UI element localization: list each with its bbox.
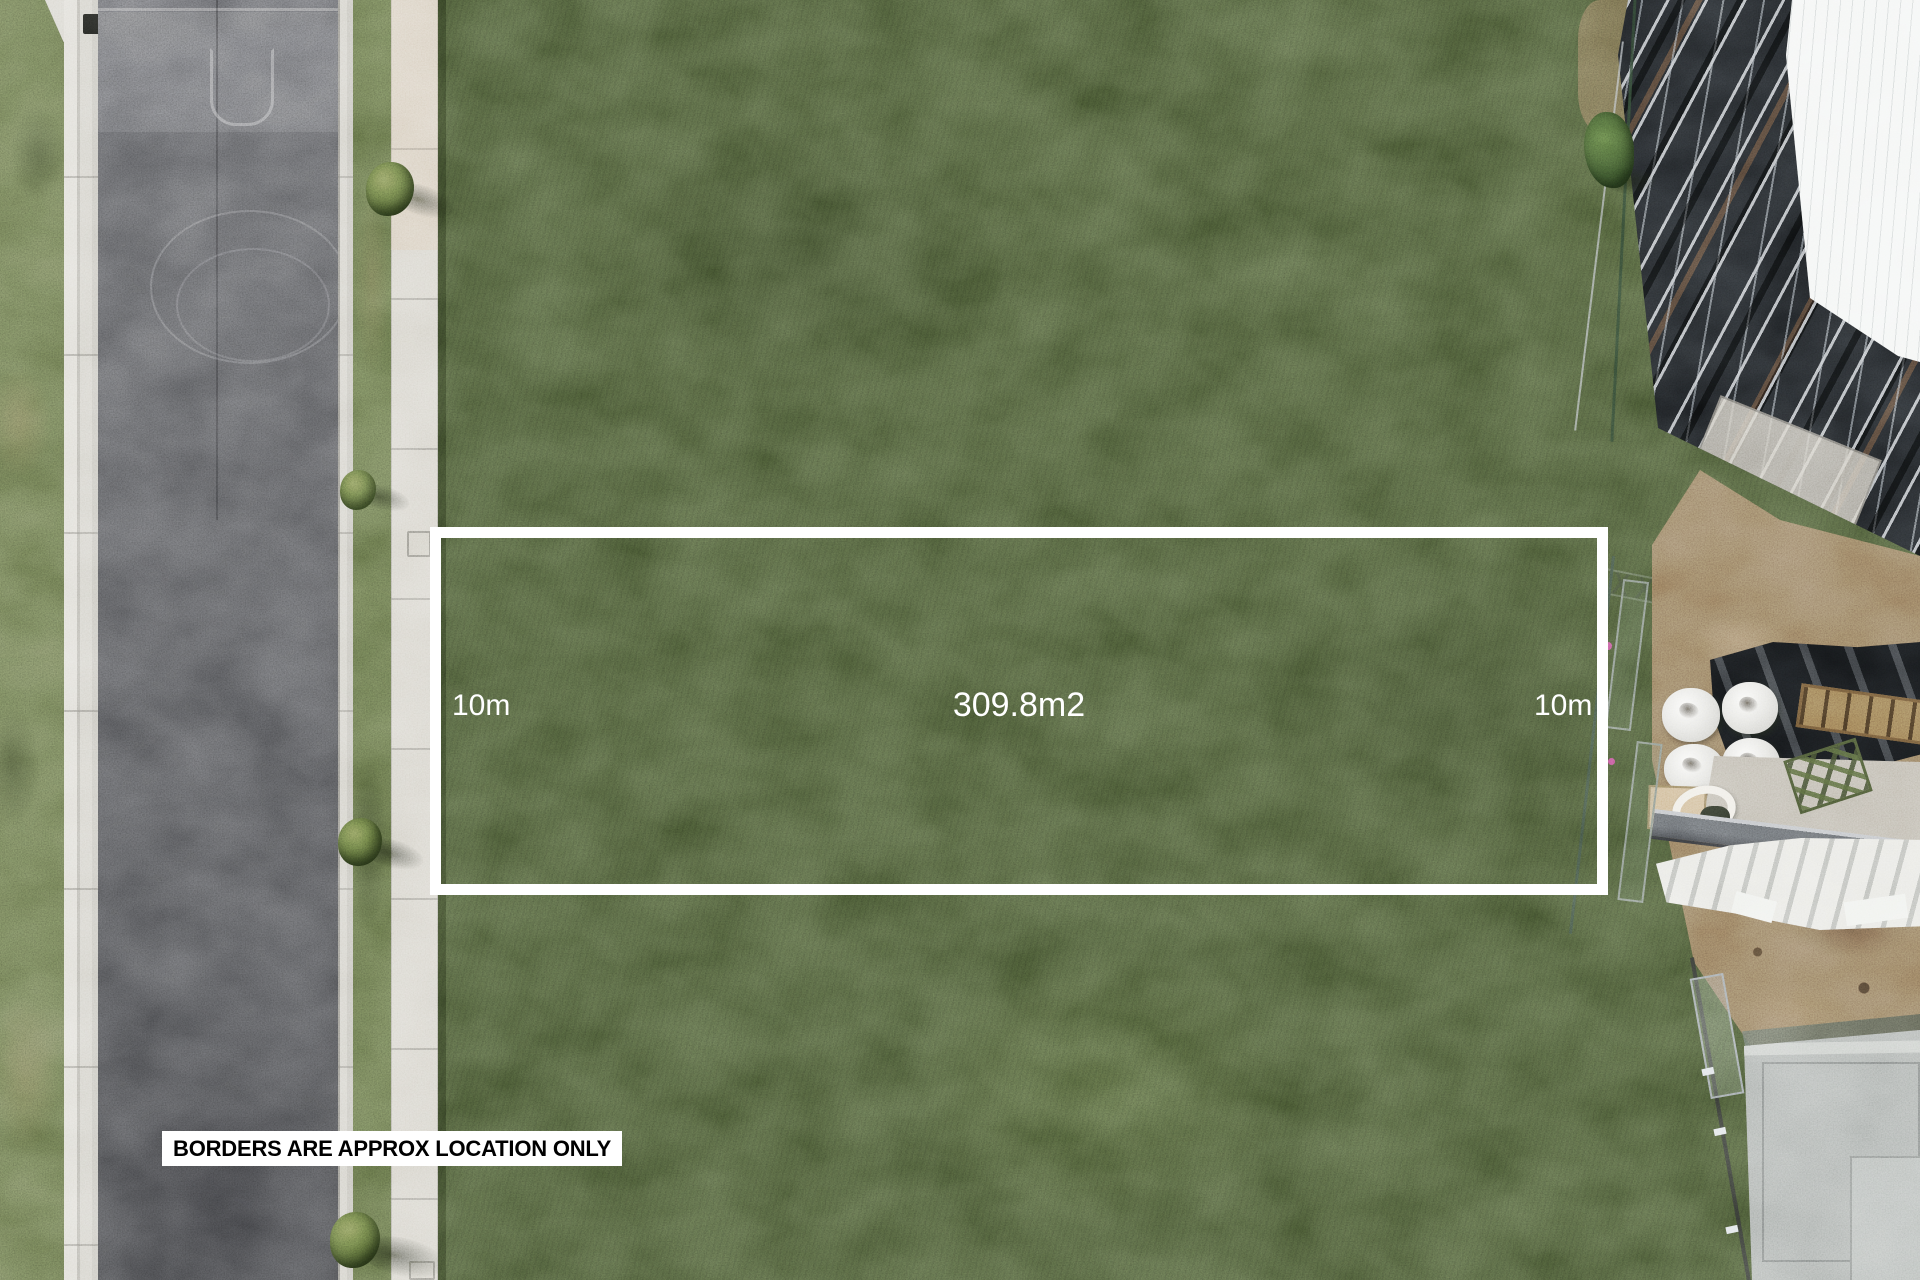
tire-mark-arc xyxy=(176,248,330,362)
left-curb xyxy=(64,0,98,1280)
pink-marker xyxy=(1608,758,1615,765)
dimension-label-right: 10m xyxy=(1534,691,1592,721)
concrete-slab xyxy=(1744,1028,1920,1280)
road-dark-patch xyxy=(98,1080,338,1280)
slab-inner-panel xyxy=(1850,1156,1920,1280)
road-joint-line xyxy=(98,8,338,11)
left-grass-verge xyxy=(0,0,64,1280)
asphalt-road xyxy=(98,0,338,1280)
bulk-bag xyxy=(1662,688,1720,742)
area-label: 309.8m2 xyxy=(430,688,1608,722)
road-chalk-mark xyxy=(210,48,274,126)
aerial-photo-scene: 10m 309.8m2 10m BORDERS ARE APPROX LOCAT… xyxy=(0,0,1920,1280)
disclaimer-badge: BORDERS ARE APPROX LOCATION ONLY xyxy=(162,1131,622,1166)
right-curb xyxy=(338,0,353,1280)
utility-pad xyxy=(407,531,431,557)
bulk-bag xyxy=(1722,682,1778,734)
